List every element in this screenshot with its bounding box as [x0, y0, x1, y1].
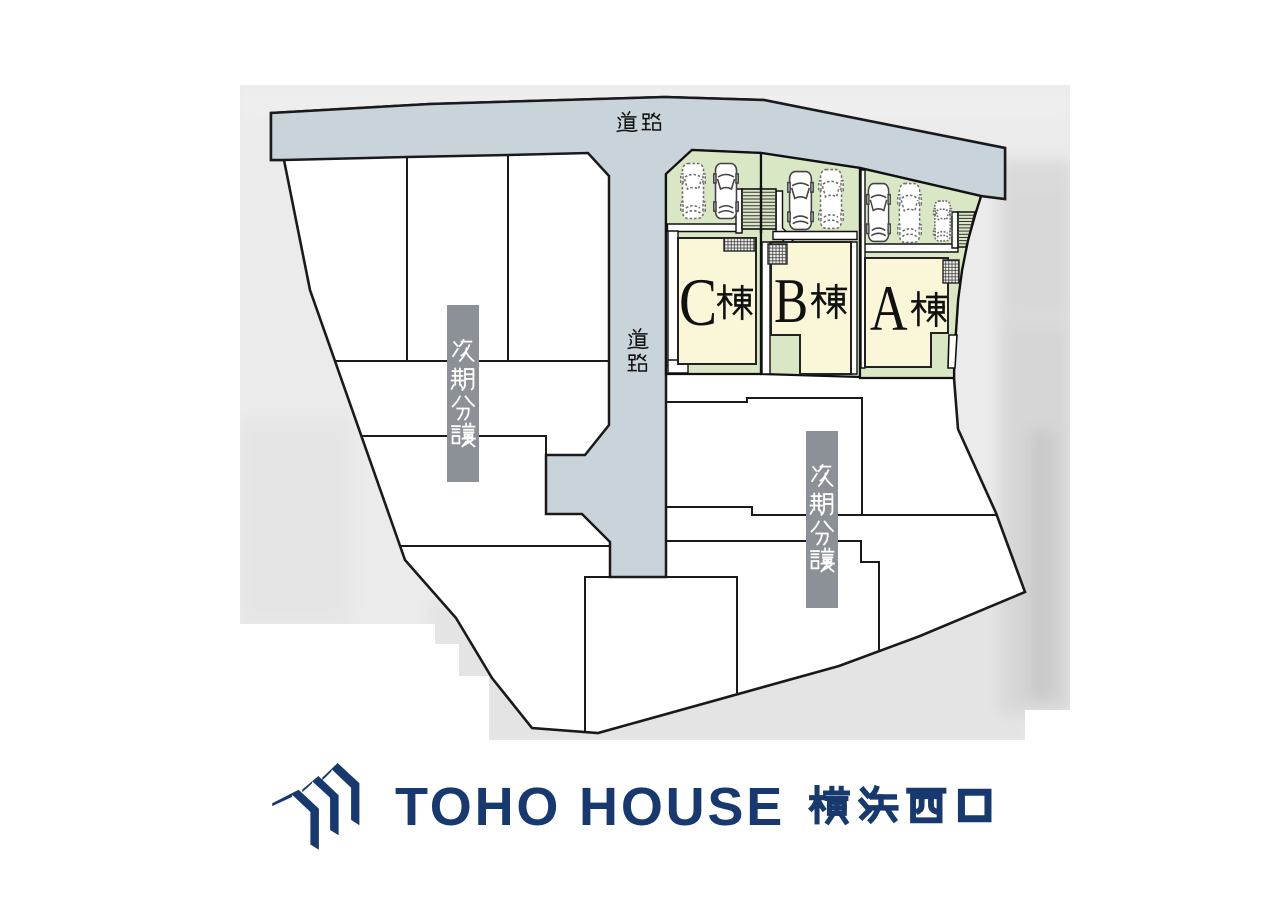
svg-text:B: B	[774, 265, 808, 337]
svg-text:C: C	[679, 264, 717, 340]
svg-text:A: A	[870, 273, 908, 345]
svg-text:TOHO HOUSE: TOHO HOUSE	[395, 777, 785, 837]
